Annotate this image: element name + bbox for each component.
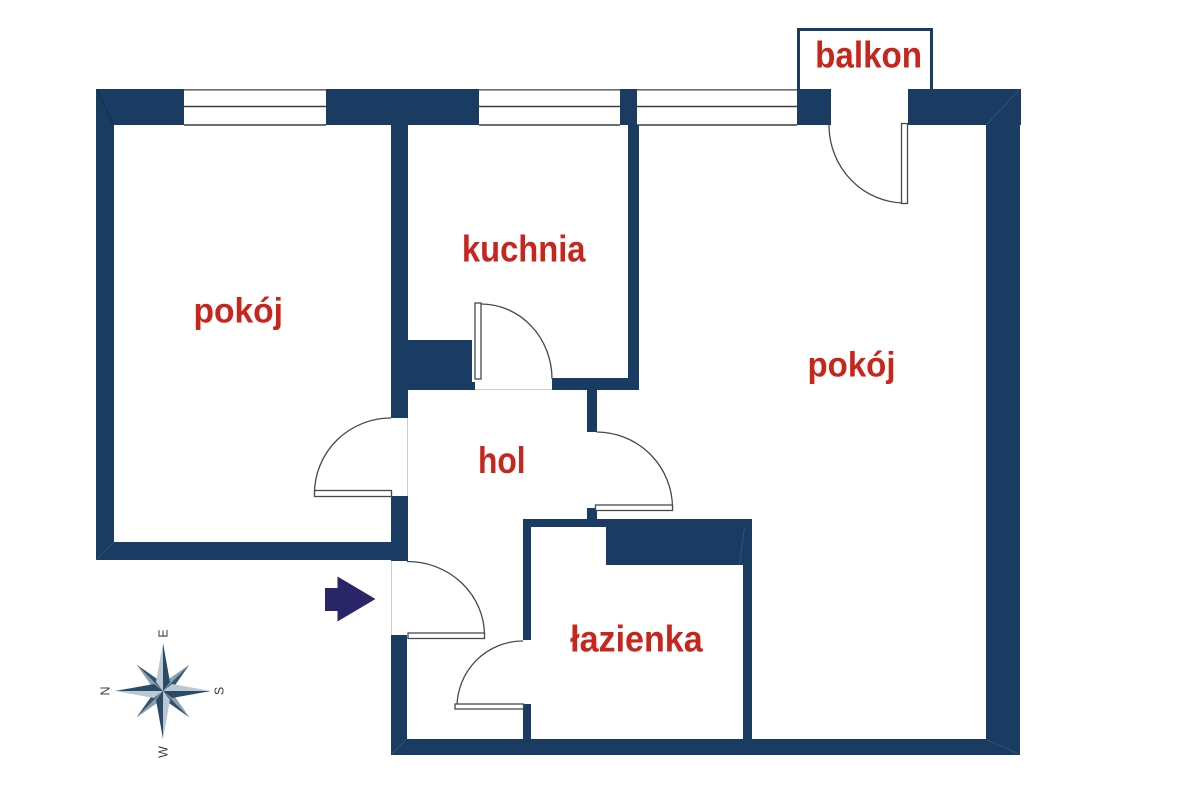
svg-text:N: N: [98, 686, 112, 695]
svg-text:pokój: pokój: [808, 346, 896, 385]
svg-text:pokój: pokój: [193, 292, 282, 331]
svg-text:kuchnia: kuchnia: [462, 228, 586, 269]
svg-text:E: E: [156, 629, 170, 637]
svg-text:łazienka: łazienka: [570, 618, 703, 660]
svg-text:S: S: [212, 687, 226, 695]
svg-text:balkon: balkon: [815, 35, 922, 76]
svg-text:W: W: [156, 746, 170, 758]
svg-text:hol: hol: [478, 441, 526, 482]
